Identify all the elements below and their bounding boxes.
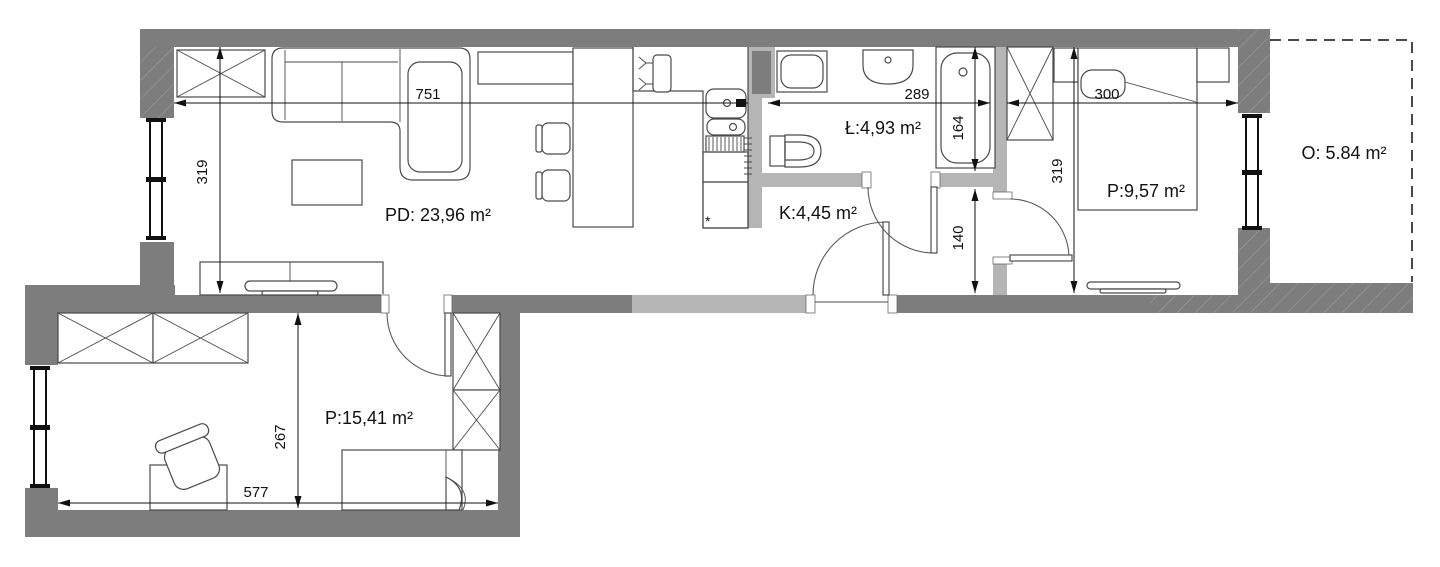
room-label-corridor: K:4,45 m² <box>779 203 857 223</box>
wall-bottom-corridor <box>632 295 806 313</box>
wall-hatch <box>1238 29 1270 113</box>
radiator-shelf <box>1087 282 1180 293</box>
dining-table <box>573 48 633 227</box>
door-jamb <box>931 172 940 188</box>
door-swing-arc <box>868 187 934 253</box>
door-opening <box>381 294 452 314</box>
wall-room2-right <box>498 313 520 537</box>
furniture-room2 <box>58 313 500 510</box>
window-cap <box>30 366 50 370</box>
wall-bottom-living-left <box>174 295 381 313</box>
door-swing-arc <box>813 222 886 295</box>
door-swing-arc <box>1010 199 1069 258</box>
wardrobe-living <box>177 50 265 97</box>
dimension-value: 164 <box>950 115 967 140</box>
floor-plan-page: * <box>0 0 1440 567</box>
dimension-value: 140 <box>950 225 967 250</box>
wall-bottom-living-right <box>452 295 632 313</box>
room-label-bedroom: P:9,57 m² <box>1107 181 1185 201</box>
window-cap <box>30 425 50 430</box>
door-opening <box>862 172 940 188</box>
wall-room2-bottom <box>25 510 520 537</box>
kitchen-annex: * <box>633 47 752 229</box>
window-cap <box>146 118 166 122</box>
window-cap <box>1242 114 1262 118</box>
wall-corridor-bedroom-lower <box>993 264 1007 295</box>
wardrobe-room2-wide <box>58 313 248 363</box>
dimension-value: 267 <box>272 424 289 449</box>
door-jamb <box>888 295 897 313</box>
fridge-snowflake-mark: * <box>705 213 711 229</box>
wall-hatch <box>1150 295 1240 313</box>
furniture-living-room <box>177 48 633 295</box>
door-opening <box>806 294 897 314</box>
dimension-value: 289 <box>904 86 929 103</box>
door-leaf <box>931 187 937 253</box>
door-opening <box>992 199 1008 257</box>
toilet <box>770 135 821 167</box>
dishwasher <box>706 136 744 152</box>
dimension-value: 319 <box>194 159 211 184</box>
wardrobe-bedroom <box>1007 47 1053 140</box>
wardrobe-room2-tall <box>453 313 500 450</box>
room-label-room2: P:15,41 m² <box>325 408 413 428</box>
door-jamb <box>444 295 452 313</box>
duct-shaft <box>752 51 771 94</box>
door-jamb <box>993 192 1012 199</box>
window-living-room <box>140 118 174 242</box>
dimension-value: 319 <box>1049 158 1066 183</box>
door-bedroom <box>992 192 1072 264</box>
wall-hatch <box>140 47 174 118</box>
wall-bathroom-bottom-right <box>940 173 1007 187</box>
room-label-living: PD: 23,96 m² <box>385 205 491 225</box>
kitchen-cabinet <box>703 152 748 182</box>
room-label-bathroom: Ł:4,93 m² <box>845 118 921 138</box>
door-jamb <box>381 295 389 313</box>
door-swing-arc <box>387 313 450 376</box>
window-cap <box>146 236 166 240</box>
window-cap <box>30 484 50 488</box>
door-entrance <box>806 222 897 314</box>
window-cap <box>1242 170 1262 175</box>
kitchen-sink-small <box>707 119 745 135</box>
sideboard <box>478 52 573 84</box>
window-cap <box>1242 226 1262 230</box>
floor-plan-drawing: * <box>0 0 1440 567</box>
bathtub <box>936 47 995 168</box>
wall-bathroom-bottom-left <box>762 173 862 187</box>
dimension-value: 577 <box>243 484 268 501</box>
window-bedroom-balcony <box>1238 113 1270 230</box>
door-leaf <box>1010 255 1072 261</box>
door-jamb <box>993 257 1012 264</box>
door-jamb <box>862 172 871 188</box>
dining-chair <box>536 170 570 201</box>
wall-hatch <box>1238 228 1270 313</box>
dimension-267: 267 <box>272 313 298 508</box>
cutting-board <box>653 55 671 92</box>
washing-machine <box>777 51 827 92</box>
dimension-value: 751 <box>415 86 440 103</box>
bathroom-sink <box>863 50 913 84</box>
door-bathroom <box>862 172 940 253</box>
furniture-bathroom <box>770 47 995 168</box>
dimension-value: 300 <box>1094 86 1119 103</box>
wall-hatch <box>1270 283 1413 313</box>
nightstand <box>1197 48 1229 82</box>
window-cap <box>146 177 166 182</box>
wall-top <box>140 29 1270 47</box>
room-label-balcony: O: 5.84 m² <box>1301 143 1386 163</box>
door-jamb <box>806 295 815 313</box>
fridge: * <box>703 182 748 229</box>
wall-room2-left-upper <box>25 285 58 365</box>
bed-single <box>342 450 465 510</box>
hob-burners-icon <box>639 57 653 90</box>
dimension-140: 140 <box>950 189 975 293</box>
door-room2 <box>381 294 452 376</box>
door-leaf <box>445 313 451 376</box>
dining-chair <box>536 123 570 154</box>
window-room2 <box>25 365 58 488</box>
coffee-table <box>292 160 362 205</box>
